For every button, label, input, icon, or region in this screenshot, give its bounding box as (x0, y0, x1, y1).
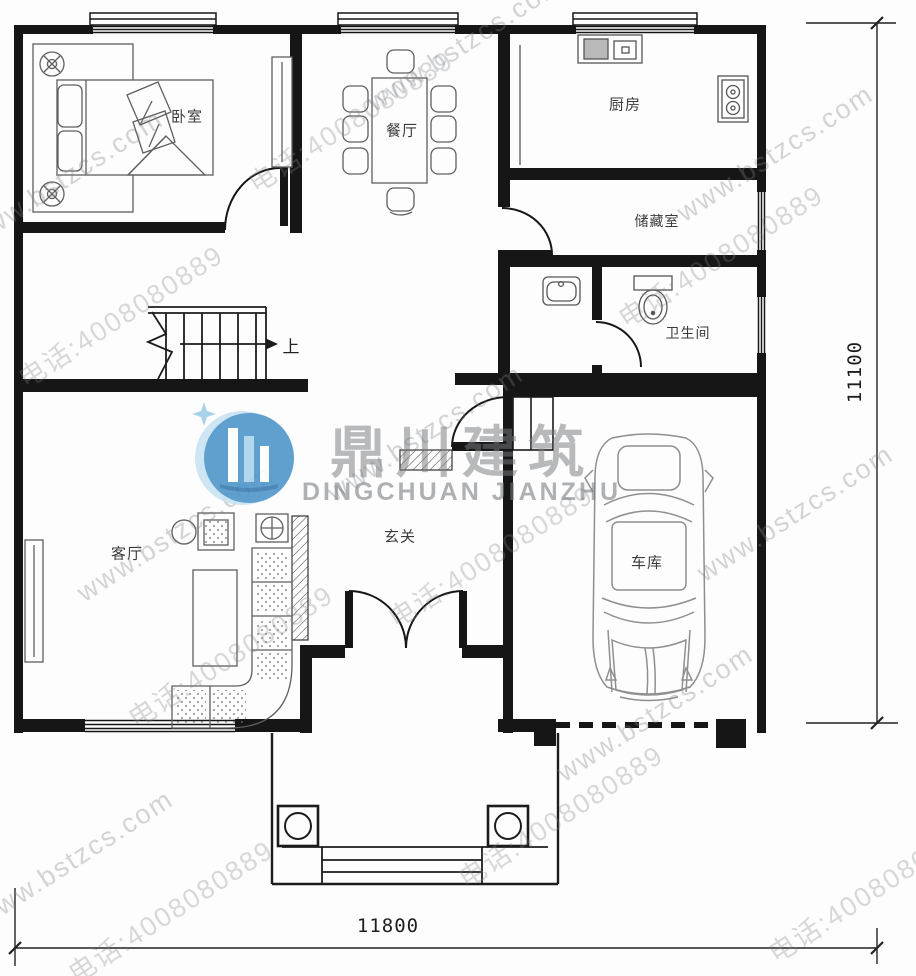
bedroom-furniture (33, 44, 292, 212)
room-label-foyer: 玄关 (384, 526, 416, 547)
hatched-walls (292, 450, 452, 640)
dimension-height-label: 11100 (844, 341, 866, 403)
room-label-kitchen: 厨房 (609, 94, 641, 115)
room-label-dining: 餐厅 (386, 120, 418, 141)
room-label-bathroom: 卫生间 (666, 323, 711, 343)
bath-fixtures (543, 276, 672, 324)
floor-plan-svg (0, 0, 916, 976)
porch (272, 733, 558, 884)
shaft (513, 397, 553, 450)
room-label-storage: 储藏室 (635, 211, 680, 231)
room-label-garage: 车库 (631, 552, 663, 573)
living-furniture (25, 513, 292, 728)
floor-plan-page: www.bstzcs.com 电话:4008080889 www.bstzcs.… (0, 0, 916, 976)
dimension-width-label: 11800 (357, 915, 419, 937)
stairs (148, 307, 278, 379)
stairs-up-label: 上 (283, 333, 300, 358)
room-label-living: 客厅 (111, 543, 143, 564)
room-label-bedroom: 卧室 (171, 106, 203, 127)
